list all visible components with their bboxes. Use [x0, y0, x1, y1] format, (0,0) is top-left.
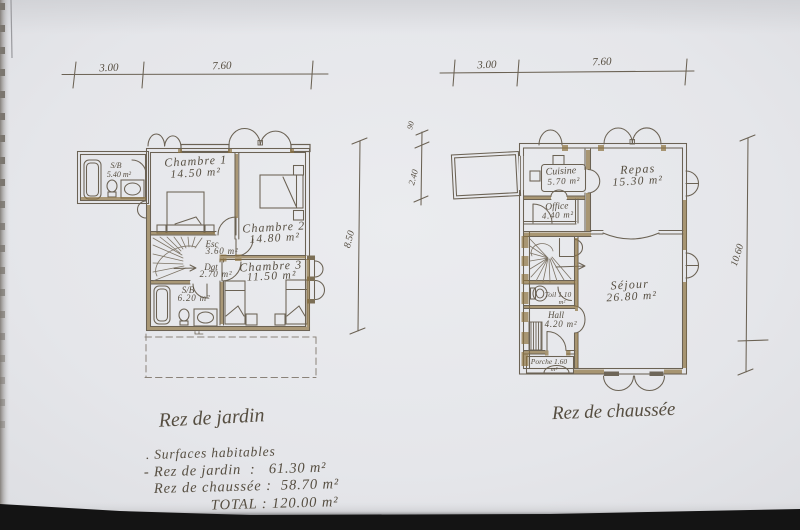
svg-text:3.60 m²: 3.60 m² [205, 246, 239, 256]
svg-text:m²: m² [559, 299, 567, 306]
svg-text:Porche 1.60: Porche 1.60 [530, 357, 568, 366]
svg-text:TOTAL : 120.00 m²: TOTAL : 120.00 m² [211, 494, 339, 513]
svg-text:S/B: S/B [110, 161, 121, 170]
svg-text:2.70 m²: 2.70 m² [200, 269, 233, 279]
svg-text:6.20 m²: 6.20 m² [178, 293, 211, 303]
svg-text:Toil 1.10: Toil 1.10 [545, 290, 572, 299]
svg-text:7.60: 7.60 [592, 56, 612, 69]
svg-text:7.60: 7.60 [212, 60, 232, 73]
svg-text:5.40 m²: 5.40 m² [107, 170, 132, 179]
svg-text:Rez de chaussée: Rez de chaussée [551, 399, 676, 424]
svg-text:3.00: 3.00 [476, 59, 497, 72]
svg-text:5.70 m²: 5.70 m² [547, 175, 580, 187]
svg-text:3.00: 3.00 [98, 62, 119, 75]
svg-text:m²: m² [551, 366, 559, 373]
svg-text:4.20 m²: 4.20 m² [545, 319, 578, 329]
svg-text:4.40 m²: 4.40 m² [542, 209, 575, 221]
